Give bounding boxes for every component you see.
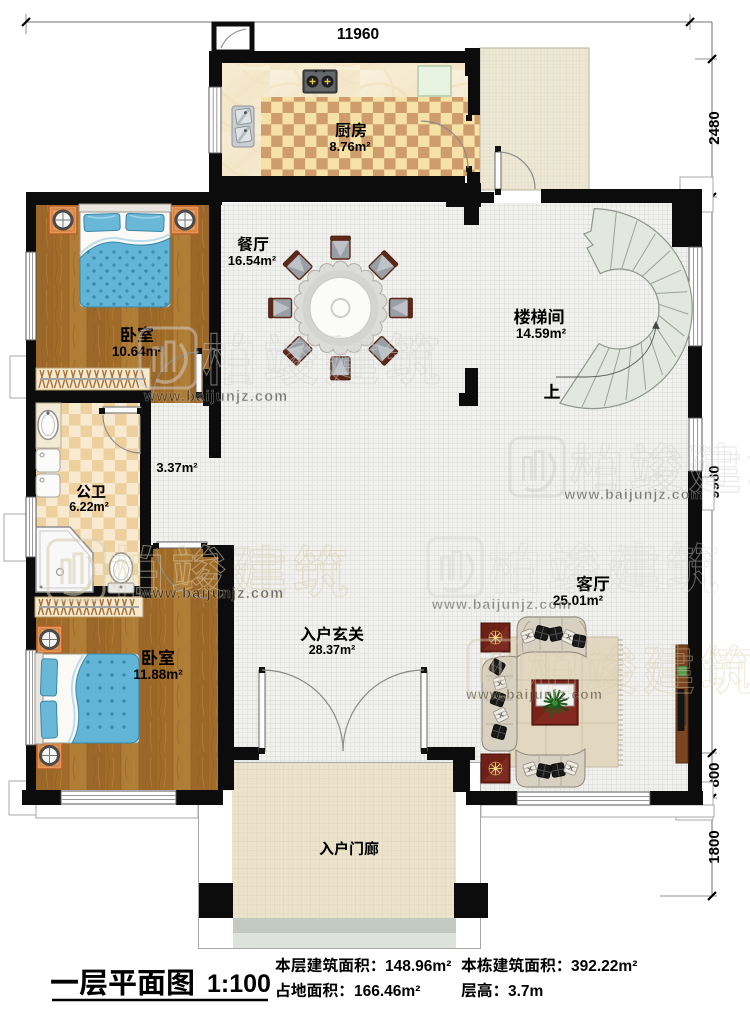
svg-text:3.7m: 3.7m	[508, 983, 543, 1000]
svg-text:392.22m²: 392.22m²	[571, 958, 637, 975]
svg-text:16.54m²: 16.54m²	[228, 253, 277, 268]
svg-text:www.baijunjz.com: www.baijunjz.com	[563, 486, 704, 502]
svg-text:148.96m²: 148.96m²	[385, 958, 451, 975]
svg-text:11.88m²: 11.88m²	[133, 667, 183, 682]
svg-text:8.76m²: 8.76m²	[329, 139, 371, 154]
svg-text:www.baijunjz.com: www.baijunjz.com	[143, 389, 288, 405]
svg-text:2480: 2480	[706, 111, 723, 144]
svg-text:6.22m²: 6.22m²	[69, 500, 109, 514]
svg-text:www.baijunjz.com: www.baijunjz.com	[465, 687, 603, 702]
svg-text:www.baijunjz.com: www.baijunjz.com	[431, 596, 572, 612]
svg-text:1:100: 1:100	[207, 970, 271, 998]
svg-text:3.37m²: 3.37m²	[156, 460, 198, 475]
svg-text:28.37m²: 28.37m²	[309, 643, 356, 657]
svg-text:www.baijunjz.com: www.baijunjz.com	[139, 586, 284, 602]
svg-text:1800: 1800	[706, 830, 723, 863]
svg-text:14.59m²: 14.59m²	[516, 326, 567, 341]
svg-text:166.46m²: 166.46m²	[354, 983, 420, 1000]
svg-text:11960: 11960	[337, 26, 379, 43]
